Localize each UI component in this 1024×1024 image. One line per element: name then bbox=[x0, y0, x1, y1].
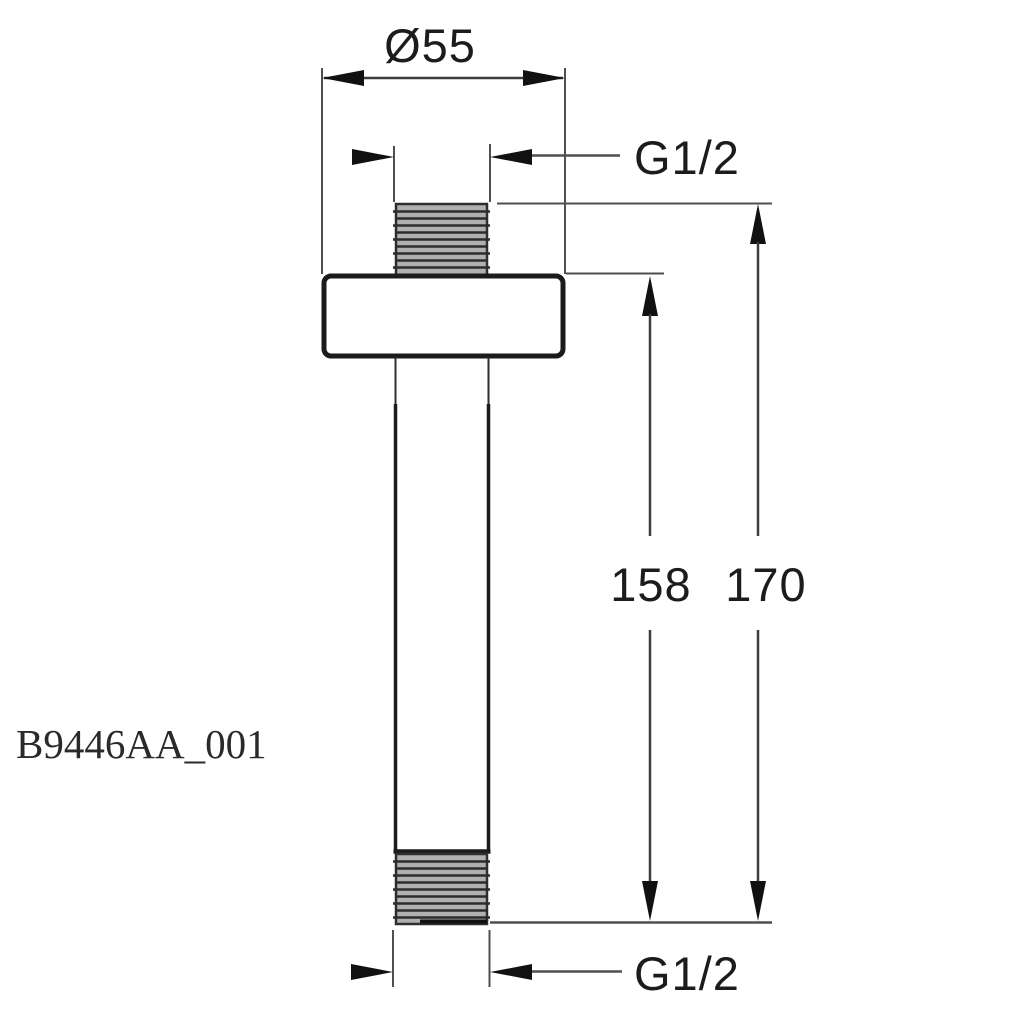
part-number: B9446AA_001 bbox=[16, 721, 267, 767]
dim-170-label: 170 bbox=[725, 558, 806, 611]
dim-158: 158 bbox=[566, 274, 692, 922]
dim-158-label: 158 bbox=[610, 558, 691, 611]
shower-arm bbox=[324, 204, 563, 924]
dim-thread-bottom: G1/2 bbox=[351, 930, 740, 1000]
arrowhead-left-icon bbox=[322, 70, 364, 86]
dim-thread-top-label: G1/2 bbox=[634, 131, 740, 184]
shower-arm-technical-drawing: Ø55 G1/2 bbox=[0, 0, 1024, 1024]
ceiling-flange bbox=[324, 276, 563, 356]
dim-thread-bottom-label: G1/2 bbox=[634, 947, 740, 1000]
arrowhead-down-icon bbox=[642, 881, 658, 921]
dim-diameter-label: Ø55 bbox=[384, 19, 476, 72]
upper-thread bbox=[393, 204, 490, 275]
arrowhead-right-icon bbox=[523, 70, 565, 86]
arrowhead-right-pointing-icon bbox=[352, 149, 394, 165]
arrowhead-up-icon bbox=[642, 276, 658, 316]
arrowhead-left-pointing-icon bbox=[490, 964, 532, 980]
dim-thread-top: G1/2 bbox=[352, 131, 740, 202]
arrowhead-left-pointing-icon bbox=[490, 149, 532, 165]
arrowhead-down-icon bbox=[750, 881, 766, 921]
arrowhead-up-icon bbox=[750, 204, 766, 244]
lower-thread bbox=[393, 854, 490, 924]
technical-drawing-canvas: Ø55 G1/2 bbox=[0, 0, 1024, 1024]
arm-tube bbox=[394, 357, 491, 852]
arrowhead-right-pointing-icon bbox=[351, 964, 393, 980]
